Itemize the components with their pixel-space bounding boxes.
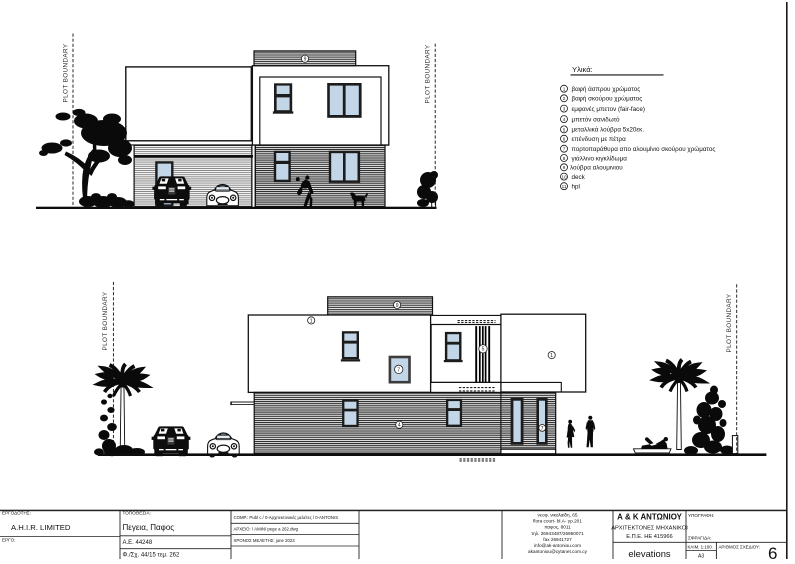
svg-text:A.H.I.R. LIMITED: A.H.I.R. LIMITED [11, 523, 71, 532]
svg-text:hpl: hpl [572, 184, 580, 191]
svg-text:πορτοπαράθυρα απο αλουμίνιο σκ: πορτοπαράθυρα απο αλουμίνιο σκούρου χρώμ… [572, 145, 716, 153]
svg-text:6: 6 [563, 137, 566, 142]
svg-text:Υλικά:: Υλικά: [572, 65, 593, 74]
svg-text:9: 9 [304, 57, 307, 63]
svg-text:ΑΡΧΕΙΟ: / AMIN/ pege a 262.dwg: ΑΡΧΕΙΟ: / AMIN/ pege a 262.dwg [234, 526, 299, 531]
svg-text:info@ak-antoniou.com: info@ak-antoniou.com [534, 543, 581, 548]
svg-text:akantoniou@cytanet.com.cy: akantoniou@cytanet.com.cy [528, 549, 588, 554]
svg-text:Ε.Π.Ε. ΗΕ 415966: Ε.Π.Ε. ΗΕ 415966 [626, 534, 672, 540]
svg-text:νεοφ. νικολαϊδη, 65: νεοφ. νικολαϊδη, 65 [538, 513, 578, 518]
svg-text:3: 3 [563, 107, 566, 112]
svg-text:11: 11 [562, 184, 567, 189]
svg-text:ΥΠΟΓΡΑΦΗ:: ΥΠΟΓΡΑΦΗ: [688, 513, 714, 518]
svg-text:PLOT BOUNDARY: PLOT BOUNDARY [102, 291, 109, 350]
svg-text:ΑΡΧΙΤΕΚΤΟΝΕΣ ΜΗΧΑΝΙΚΟΙ: ΑΡΧΙΤΕΚΤΟΝΕΣ ΜΗΧΑΝΙΚΟΙ [611, 526, 688, 532]
svg-text:deck: deck [572, 174, 586, 181]
svg-text:fax 26941727: fax 26941727 [543, 537, 572, 542]
svg-text:Α & Κ ΑΝΤΩΝΙΟΥ: Α & Κ ΑΝΤΩΝΙΟΥ [617, 513, 683, 522]
svg-text:7: 7 [563, 147, 566, 152]
svg-text:PLOT BOUNDARY: PLOT BOUNDARY [726, 293, 733, 352]
svg-text:9: 9 [396, 303, 399, 309]
svg-text:10: 10 [561, 175, 567, 180]
svg-text:9: 9 [563, 165, 566, 170]
svg-text:COMP.: Publ c / 0-Αρχιτεκτονικ: COMP.: Publ c / 0-Αρχιτεκτονικές μελέτες… [234, 515, 339, 520]
svg-text:ΚΛΙΜ. 1:100: ΚΛΙΜ. 1:100 [688, 544, 713, 549]
svg-text:4: 4 [563, 117, 566, 122]
svg-text:παφος, 8011: παφος, 8011 [544, 525, 571, 530]
svg-text:τηλ. 26943487/26950071: τηλ. 26943487/26950071 [531, 531, 584, 536]
svg-text:Πεγεια, Παφος: Πεγεια, Παφος [123, 523, 175, 532]
svg-text:Φ./Σχ. 44/15 τεμ. 262: Φ./Σχ. 44/15 τεμ. 262 [123, 553, 181, 559]
svg-text:λούβρα αλουμινιου: λούβρα αλουμινιου [570, 164, 623, 172]
svg-text:1: 1 [563, 87, 566, 92]
svg-text:2: 2 [563, 96, 566, 101]
svg-text:1: 1 [550, 353, 553, 359]
svg-text:4: 4 [398, 423, 401, 429]
svg-text:flora court- bl.A- γρ.201: flora court- bl.A- γρ.201 [533, 519, 582, 524]
svg-text:5: 5 [482, 347, 485, 353]
svg-text:elevations: elevations [628, 548, 671, 559]
svg-text:5: 5 [563, 127, 566, 132]
svg-text:PLOT BOUNDARY: PLOT BOUNDARY [63, 43, 70, 102]
svg-text:ΑΡΙΘΜΟΣ ΣΧΕΔΙΟΥ:: ΑΡΙΘΜΟΣ ΣΧΕΔΙΟΥ: [719, 544, 760, 549]
svg-text:βαφή άσπρου χρώματος: βαφή άσπρου χρώματος [572, 85, 641, 93]
svg-text:6: 6 [768, 544, 777, 559]
svg-text:ΣΦΡΑΓΙΔΑ:: ΣΦΡΑΓΙΔΑ: [688, 536, 712, 541]
svg-text:γιάλλινο κιγκλίδωμα: γιάλλινο κιγκλίδωμα [572, 154, 628, 162]
svg-text:Α.Ε. 44248: Α.Ε. 44248 [123, 540, 153, 546]
svg-text:ΤΟΠΟΘΕΣΙΑ:: ΤΟΠΟΘΕΣΙΑ: [123, 511, 151, 516]
svg-text:ΕΡΓΟΔΟΤΗΣ:: ΕΡΓΟΔΟΤΗΣ: [2, 511, 31, 516]
svg-text:7: 7 [541, 426, 544, 432]
svg-text:ΕΡΓΟ:: ΕΡΓΟ: [2, 538, 16, 543]
svg-text:7: 7 [397, 367, 400, 373]
svg-text:1: 1 [310, 318, 313, 324]
svg-text:μπετόν σανιδωτό: μπετόν σανιδωτό [572, 115, 621, 123]
svg-text:8: 8 [563, 156, 566, 161]
svg-text:ΧΡΟΝΟΣ ΜΕΛΕΤΗΣ: june 2023: ΧΡΟΝΟΣ ΜΕΛΕΤΗΣ: june 2023 [234, 538, 296, 543]
svg-text:βαφή σκούρου χρώματος: βαφή σκούρου χρώματος [572, 95, 643, 103]
svg-text:PLOT BOUNDARY: PLOT BOUNDARY [424, 44, 431, 103]
svg-text:Α3: Α3 [698, 554, 704, 560]
svg-text:επένδυση με πέτρα: επένδυση με πέτρα [572, 135, 627, 143]
svg-text:εμφανές μπετον (fair-face): εμφανές μπετον (fair-face) [572, 105, 645, 113]
svg-text:μεταλλικά λούβρα 5x20εκ.: μεταλλικά λούβρα 5x20εκ. [572, 126, 645, 134]
